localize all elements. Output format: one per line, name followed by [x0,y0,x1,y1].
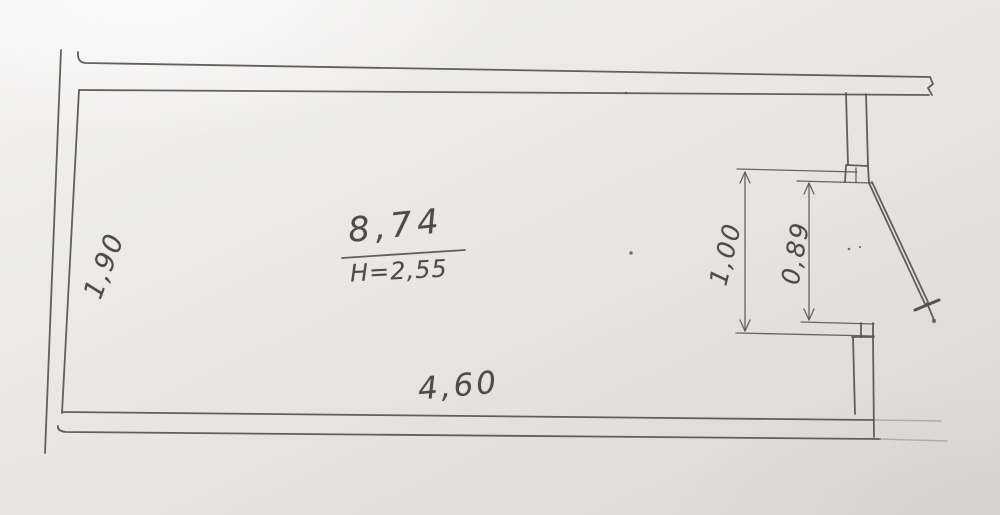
door-upper-wall [845,93,869,183]
floor-plan-sheet: 8,74 H=2,55 4,60 1,90 1,00 0,89 [0,0,1000,515]
door-leaf [869,182,939,323]
floor-plan-linework [0,0,1000,515]
room-height-label: H=2,55 [349,254,448,287]
room-bottom-width-label: 4,60 [417,365,501,408]
